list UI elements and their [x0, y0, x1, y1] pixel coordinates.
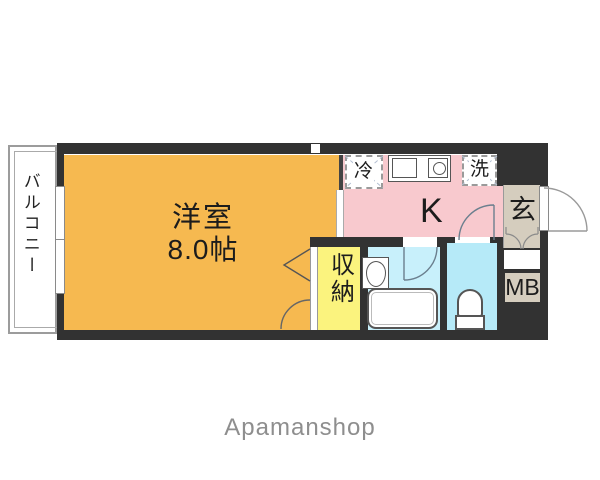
toilet-doorway [455, 237, 490, 243]
kitchen-sink [392, 158, 417, 178]
room-kitchen-opening [336, 190, 344, 237]
room-name: 洋室 [120, 203, 286, 235]
wall-notch [311, 144, 320, 153]
fridge-label: 冷 [353, 162, 374, 183]
closet-label: 収納 [326, 252, 352, 306]
meter-box: MB [505, 273, 540, 302]
main-room-label: 洋室 8.0帖 [120, 203, 286, 266]
window-divider [55, 239, 65, 240]
floorplan-canvas: バルコニー MB [0, 0, 600, 480]
kitchen-label: K [420, 193, 443, 230]
wall-corner-block [497, 143, 548, 186]
stove-burner-icon [433, 162, 446, 175]
utility-box [504, 250, 540, 269]
bathtub [367, 288, 438, 329]
entrance-door-arc [544, 188, 587, 231]
front-door-panel [539, 186, 549, 231]
meter-box-label: MB [505, 274, 540, 301]
closet-door-track [310, 247, 318, 330]
balcony-label: バルコニー [20, 172, 39, 277]
bathroom-doorway [403, 237, 437, 247]
wall-top [57, 143, 548, 154]
toilet-bowl [457, 289, 483, 317]
kitchen-partition-wall [339, 155, 343, 190]
toilet-tank [455, 315, 485, 330]
brand-text: Apamanshop [0, 414, 600, 442]
room-size: 8.0帖 [120, 235, 286, 266]
entrance-label: 玄 [509, 196, 536, 226]
washer-label: 洗 [469, 160, 490, 181]
balcony-window [55, 186, 65, 294]
